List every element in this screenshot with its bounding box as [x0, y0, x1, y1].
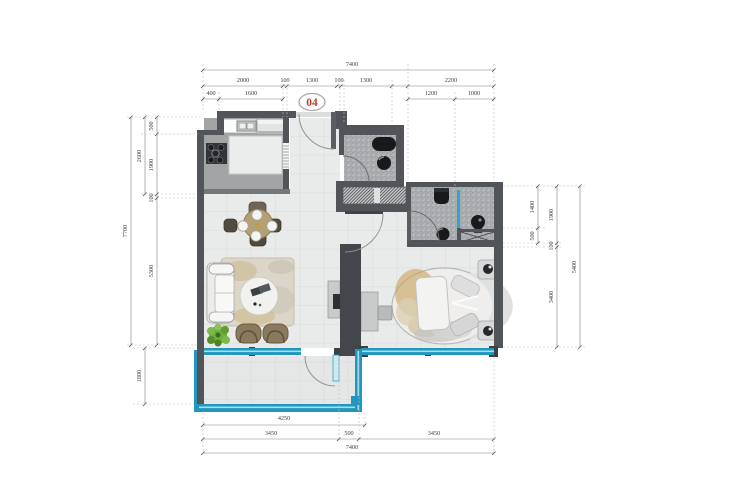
svg-text:1900: 1900: [548, 209, 555, 221]
svg-text:1300: 1300: [306, 77, 318, 84]
svg-text:1000: 1000: [468, 90, 480, 97]
svg-text:7700: 7700: [122, 225, 129, 237]
svg-text:1900: 1900: [148, 159, 155, 171]
svg-text:100: 100: [334, 77, 343, 84]
svg-text:3450: 3450: [265, 430, 277, 437]
svg-text:3450: 3450: [428, 430, 440, 437]
svg-text:7400: 7400: [346, 61, 358, 68]
svg-text:1400: 1400: [529, 201, 536, 213]
svg-text:500: 500: [529, 231, 536, 240]
svg-text:400: 400: [206, 90, 215, 97]
svg-text:100: 100: [280, 77, 289, 84]
svg-text:2600: 2600: [136, 150, 143, 162]
svg-text:500: 500: [148, 121, 155, 130]
svg-text:7400: 7400: [346, 444, 358, 451]
svg-text:1800: 1800: [136, 370, 143, 382]
svg-text:04: 04: [306, 97, 318, 109]
svg-text:5300: 5300: [148, 265, 155, 277]
svg-text:4250: 4250: [278, 415, 290, 422]
svg-text:1300: 1300: [360, 77, 372, 84]
svg-text:2200: 2200: [445, 77, 457, 84]
svg-text:500: 500: [344, 430, 353, 437]
svg-text:3400: 3400: [548, 291, 555, 303]
svg-text:5400: 5400: [571, 261, 578, 273]
svg-text:2000: 2000: [237, 77, 249, 84]
svg-text:1600: 1600: [245, 90, 257, 97]
svg-text:1200: 1200: [425, 90, 437, 97]
